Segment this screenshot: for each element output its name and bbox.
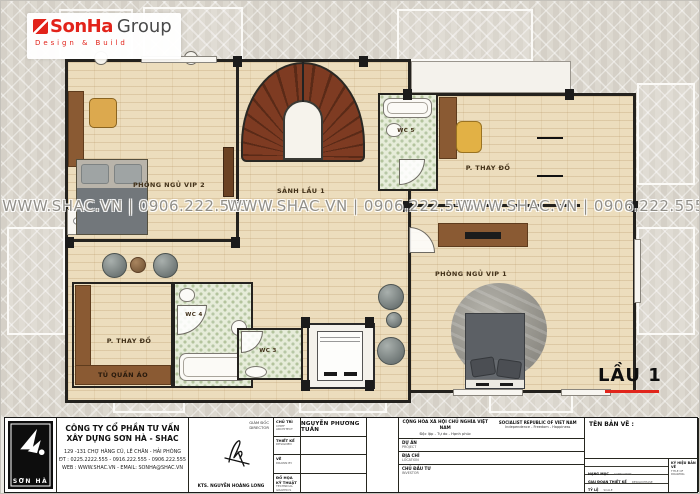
plan-area: PHÒNG NGỦ VIP 2 SẢNH LẦU 1 WC 5 P. THAY …	[1, 1, 700, 417]
director-name: KTS. NGUYỄN HOÀNG LONG	[189, 484, 273, 489]
room-label-wardrobe: TỦ QUẦN ÁO	[98, 371, 148, 379]
armchair	[456, 121, 482, 153]
republic-row-label-en: INVESTOR	[402, 471, 584, 475]
wall	[65, 239, 239, 242]
sonha-black-logo: SƠN HÀ	[8, 421, 53, 489]
director-label: GIÁM ĐỐC DIRECTOR	[249, 421, 269, 431]
window	[453, 389, 523, 396]
drawing-code-label-en: TITLE OF DRAWING	[671, 470, 697, 477]
chair	[153, 253, 178, 278]
stair-break-line	[302, 62, 304, 102]
company-name: CÔNG TY CỔ PHẦN TƯ VẤN XÂY DỰNG SƠN HÀ -…	[57, 424, 188, 444]
balcony-outline	[637, 83, 695, 185]
column	[565, 89, 574, 100]
bed-vip1	[465, 313, 525, 389]
republic-en-line2: Independence - Freedom - Happiness	[492, 425, 585, 430]
room-label-wc5: WC 5	[397, 128, 414, 134]
drawing-row-label-en: DESIGN PHASE	[632, 480, 653, 484]
toilet	[179, 288, 195, 302]
title-block-company-cell: CÔNG TY CỔ PHẦN TƯ VẤN XÂY DỰNG SƠN HÀ -…	[57, 418, 189, 492]
company-phone: ĐT : 0225.2222.555 - 0916.222.555 - 0906…	[57, 456, 188, 464]
title-block-republic-cell: CỘNG HÒA XÃ HỘI CHỦ NGHĨA VIỆT NAM Độc l…	[399, 418, 585, 492]
pillow	[81, 164, 109, 184]
sink	[245, 366, 267, 378]
tv	[465, 232, 501, 239]
elevator-door-mark	[344, 372, 357, 376]
elevator-line	[320, 337, 360, 338]
room-label-wc3: WC 3	[259, 348, 276, 354]
watermark: WWW.SHAC.VN | 0906.222.555	[457, 197, 700, 215]
republic-vn-line1: CỘNG HÒA XÃ HỘI CHỦ NGHĨA VIỆT NAM	[399, 420, 492, 432]
staff-label-en: CHIEF ARCHITECT	[276, 425, 299, 433]
column	[359, 56, 368, 67]
staff-row: CHỦ TRÌ CHIEF ARCHITECT NGUYỄN PHƯƠNG TU…	[274, 418, 366, 437]
drawing-row: HẠNG MỤC CATEGORIES	[585, 459, 668, 467]
wardrobe-panel	[439, 97, 457, 159]
balcony-floor	[411, 61, 571, 93]
drawing-code-cell: KÝ HIỆU BẢN VẼ TITLE OF DRAWING	[669, 459, 698, 492]
staff-row-label: THIẾT KẾ DESIGNED	[274, 437, 301, 455]
balcony-outline	[7, 227, 65, 335]
room-label-hall: SẢNH LẦU 1	[277, 187, 325, 195]
bed-foot-detail	[476, 383, 489, 386]
window	[634, 239, 641, 303]
sonha-logo-text: SƠN HÀ	[9, 478, 52, 485]
company-name-line1: CÔNG TY CỔ PHẦN TƯ VẤN	[57, 424, 188, 434]
republic-row: ĐỊA CHỈ LOCATION	[399, 452, 584, 465]
dimension-tick	[537, 137, 563, 139]
republic-header-en: SOCIALIST REPUBLIC OF VIET NAM Independe…	[492, 418, 585, 438]
floor-label: LẦU 1	[598, 365, 662, 386]
room-label-wc4: WC 4	[185, 312, 202, 318]
republic-header: CỘNG HÒA XÃ HỘI CHỦ NGHĨA VIỆT NAM Độc l…	[399, 418, 584, 439]
room-label-bedroom-vip2: PHÒNG NGỦ VIP 2	[133, 181, 205, 189]
title-block: SƠN HÀ CÔNG TY CỔ PHẦN TƯ VẤN XÂY DỰNG S…	[4, 417, 698, 493]
bed-foot	[466, 379, 524, 388]
pillow	[470, 356, 497, 378]
room-label-dressing-right: P. THAY ĐỒ	[466, 164, 511, 172]
floor-plan-sheet: PHÒNG NGỦ VIP 2 SẢNH LẦU 1 WC 5 P. THAY …	[0, 0, 700, 494]
column	[65, 237, 74, 248]
pillow	[496, 358, 522, 379]
staff-row-label: CHỦ TRÌ CHIEF ARCHITECT	[274, 418, 301, 436]
director-signature	[189, 432, 274, 472]
staff-label-en: TECHNICAL GRAPHICS	[276, 485, 299, 493]
blanket	[466, 314, 524, 360]
column	[301, 317, 310, 328]
company-address: 129 -131 CHỢ HÀNG CŨ, LÊ CHÂN - HẢI PHÒN…	[57, 448, 188, 456]
door-leaf	[223, 147, 234, 197]
brand-suffix: Group	[117, 16, 172, 37]
wardrobe-panel	[68, 91, 84, 167]
column	[231, 237, 240, 248]
republic-row-label-en: PROJECT	[402, 445, 584, 449]
wall	[236, 59, 239, 244]
window	[561, 389, 611, 396]
staff-row: THIẾT KẾ DESIGNED	[274, 437, 366, 456]
brand-logo-line1: SonHa Group	[33, 16, 175, 37]
republic-row: CHỦ ĐẦU TƯ INVESTOR	[399, 465, 584, 492]
sonha-mark-icon	[33, 19, 48, 34]
company-details: 129 -131 CHỢ HÀNG CŨ, LÊ CHÂN - HẢI PHÒN…	[57, 448, 188, 473]
bed-foot-detail	[500, 383, 513, 386]
brand-name: SonHa	[50, 16, 113, 37]
title-block-staff-cell: CHỦ TRÌ CHIEF ARCHITECT NGUYỄN PHƯƠNG TU…	[274, 418, 367, 492]
watermark: WWW.SHAC.VN | 0906.222.555	[2, 197, 250, 215]
staff-row-label: ĐỒ HỌA KỸ THUẬT TECHNICAL GRAPHICS	[274, 474, 301, 493]
watermark: WWW.SHAC.VN | 0906.222.555	[227, 197, 475, 215]
brand-logo: SonHa Group Design & Build	[27, 13, 181, 59]
title-block-logo-cell: SƠN HÀ	[5, 418, 57, 492]
title-block-drawing-cell: TÊN BẢN VẼ : HẠNG MỤC CATEGORIES GIAI ĐO…	[585, 418, 699, 492]
column	[233, 56, 242, 67]
column	[365, 317, 374, 328]
room-label-bedroom-vip1: PHÒNG NGỦ VIP 1	[435, 270, 507, 278]
column	[365, 380, 374, 391]
staff-value	[301, 455, 366, 473]
staff-value	[301, 474, 366, 493]
stool	[377, 337, 405, 365]
bathtub	[383, 98, 432, 118]
side-table	[130, 257, 146, 273]
drawing-row: GIAI ĐOẠN THIẾT KẾ DESIGN PHASE	[585, 467, 668, 475]
staff-label-en: DESIGNED	[276, 443, 299, 447]
column	[403, 89, 412, 100]
company-name-line2: XÂY DỰNG SƠN HÀ - SHAC	[57, 434, 188, 444]
floor-label-underline	[605, 390, 659, 393]
stool	[386, 312, 402, 328]
staff-row: ĐỒ HỌA KỸ THUẬT TECHNICAL GRAPHICS	[274, 474, 366, 493]
republic-header-vn: CỘNG HÒA XÃ HỘI CHỦ NGHĨA VIỆT NAM Độc l…	[399, 418, 492, 438]
staff-label-en: DRAWN BY	[276, 462, 299, 466]
balcony-outline	[397, 9, 533, 61]
staff-value	[301, 437, 366, 455]
republic-row-label-en: LOCATION	[402, 458, 584, 462]
column	[301, 380, 310, 391]
director-label-en: DIRECTOR	[249, 426, 269, 431]
staff-value: NGUYỄN PHƯƠNG TUẤN	[301, 418, 366, 436]
balcony-outline	[637, 227, 695, 335]
elevator-car	[317, 331, 363, 381]
republic-vn-line2: Độc lập - Tự do - Hạnh phúc	[399, 432, 492, 437]
dimension-tick	[537, 175, 563, 177]
republic-row: DỰ ÁN PROJECT	[399, 439, 584, 452]
title-block-director-cell: GIÁM ĐỐC DIRECTOR KTS. NGUYỄN HOÀNG LONG	[189, 418, 274, 492]
drawing-rows: HẠNG MỤC CATEGORIES GIAI ĐOẠN THIẾT KẾ D…	[585, 459, 669, 492]
title-block-signature-cell	[367, 418, 399, 492]
staff-row: VẼ DRAWN BY	[274, 455, 366, 474]
stool	[378, 284, 404, 310]
elevator-door-mark	[324, 372, 337, 376]
company-web: WEB : WWW.SHAC.VN - EMAIL: SONHA@SHAC.VN	[57, 464, 188, 472]
elevator-line	[320, 341, 360, 342]
brand-tagline: Design & Build	[35, 39, 175, 47]
chair	[102, 253, 127, 278]
room-label-dressing-left: P. THAY ĐỒ	[107, 337, 152, 345]
drawing-title-label: TÊN BẢN VẼ :	[585, 418, 698, 459]
stair-arch-niche	[283, 100, 323, 160]
armchair	[89, 98, 117, 128]
tv-cabinet	[438, 223, 528, 247]
staff-row-label: VẼ DRAWN BY	[274, 455, 301, 473]
drawing-bottom: HẠNG MỤC CATEGORIES GIAI ĐOẠN THIẾT KẾ D…	[585, 459, 698, 492]
sonha-emblem-icon	[9, 422, 52, 460]
